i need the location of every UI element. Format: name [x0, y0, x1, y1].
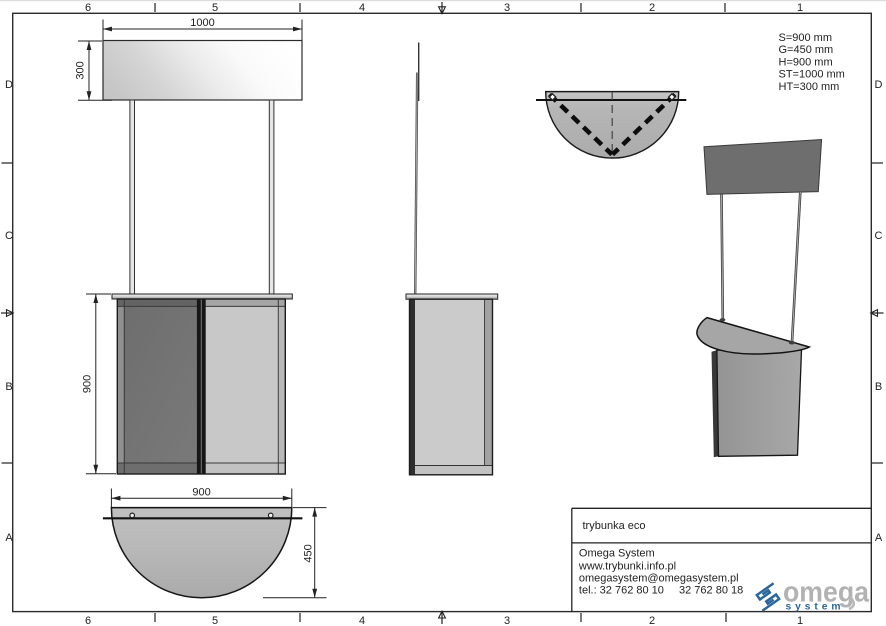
- svg-text:2: 2: [649, 615, 655, 626]
- svg-text:Omega System: Omega System: [579, 548, 655, 560]
- svg-text:300: 300: [75, 61, 87, 79]
- svg-text:H=900 mm: H=900 mm: [779, 56, 833, 68]
- svg-text:A: A: [5, 532, 13, 544]
- svg-text:www.trybunki.info.pl: www.trybunki.info.pl: [578, 561, 676, 573]
- svg-text:B: B: [5, 381, 12, 393]
- svg-text:omegasystem@omegasystem.pl: omegasystem@omegasystem.pl: [579, 573, 739, 585]
- svg-text:32 762 80 18: 32 762 80 18: [679, 585, 743, 597]
- svg-text:C: C: [875, 230, 883, 242]
- svg-text:1000: 1000: [190, 17, 214, 29]
- svg-text:D: D: [5, 79, 13, 91]
- svg-text:4: 4: [359, 2, 365, 14]
- svg-text:A: A: [875, 532, 883, 544]
- svg-text:C: C: [5, 230, 13, 242]
- svg-text:900: 900: [192, 486, 210, 498]
- svg-text:900: 900: [82, 375, 94, 393]
- svg-text:6: 6: [85, 2, 91, 14]
- svg-text:4: 4: [359, 615, 365, 626]
- svg-text:5: 5: [212, 2, 218, 14]
- svg-text:D: D: [875, 79, 883, 91]
- svg-text:tel.: 32 762 80 10: tel.: 32 762 80 10: [579, 585, 664, 597]
- svg-text:ST=1000 mm: ST=1000 mm: [779, 69, 845, 81]
- svg-text:1: 1: [797, 615, 803, 626]
- svg-text:G=450 mm: G=450 mm: [779, 44, 834, 56]
- svg-text:1: 1: [797, 2, 803, 14]
- svg-text:3: 3: [504, 615, 510, 626]
- svg-text:6: 6: [85, 615, 91, 626]
- svg-text:trybunka eco: trybunka eco: [583, 520, 646, 532]
- svg-text:3: 3: [504, 2, 510, 14]
- svg-text:S=900 mm: S=900 mm: [779, 32, 833, 44]
- svg-text:B: B: [875, 381, 882, 393]
- svg-text:2: 2: [649, 2, 655, 14]
- svg-text:450: 450: [302, 544, 314, 562]
- svg-text:HT=300 mm: HT=300 mm: [779, 81, 840, 93]
- svg-text:5: 5: [212, 615, 218, 626]
- svg-text:system: system: [786, 602, 845, 613]
